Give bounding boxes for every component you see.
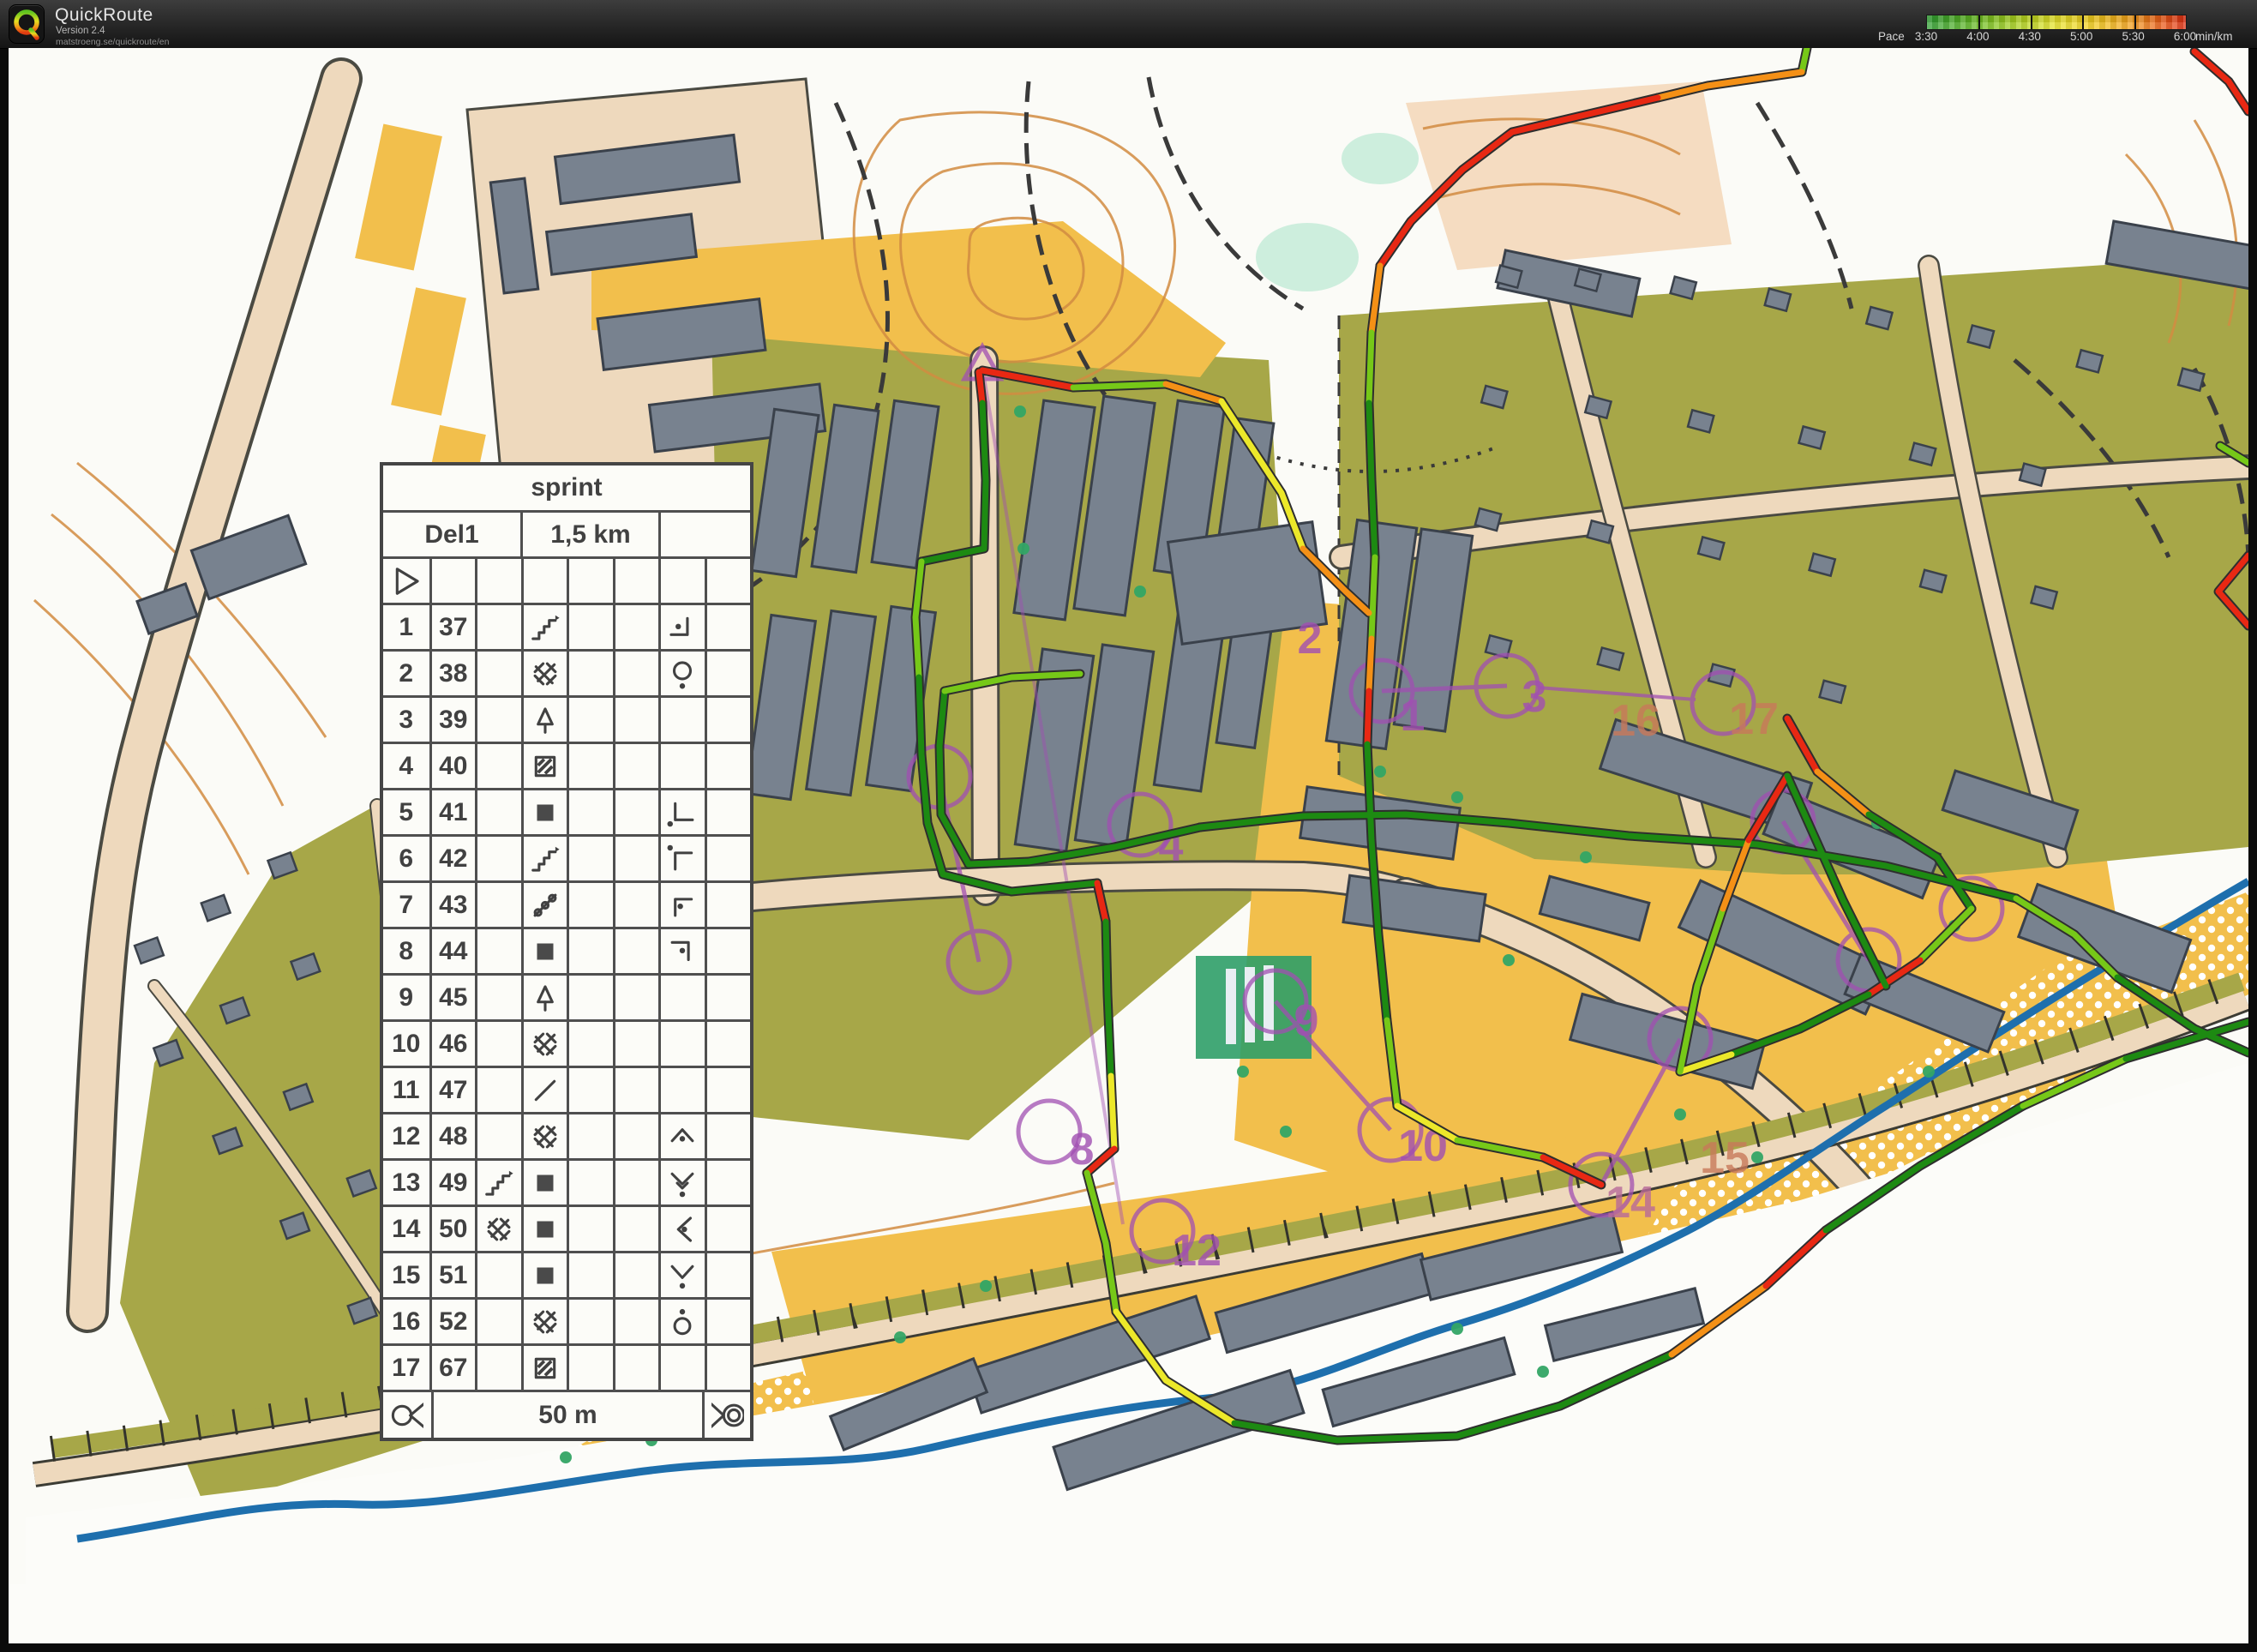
card-cell xyxy=(705,1251,751,1297)
empty-cell xyxy=(475,556,521,603)
card-cell xyxy=(475,649,521,695)
card-cell xyxy=(658,695,705,742)
card-cell xyxy=(705,788,751,834)
paved-area-icon xyxy=(529,1352,561,1385)
card-cell xyxy=(521,788,567,834)
card-cell xyxy=(658,1204,705,1251)
card-cell: 39 xyxy=(429,695,476,742)
pace-tick-label: 5:30 xyxy=(2122,30,2144,43)
control-row: 1767 xyxy=(383,1343,750,1390)
empty-cell xyxy=(521,556,567,603)
building-icon xyxy=(529,796,561,829)
pace-legend: Pace 3:304:004:305:005:306:00 min/km xyxy=(1876,3,2245,46)
control-code: 45 xyxy=(439,983,467,1012)
empty-cell xyxy=(429,556,476,603)
card-cell xyxy=(658,1297,705,1343)
card-cell xyxy=(613,1158,659,1204)
card-cell: 51 xyxy=(429,1251,476,1297)
control-number: 14 xyxy=(392,1215,420,1244)
card-cell: 3 xyxy=(383,695,429,742)
card-cell xyxy=(613,649,659,695)
control-number-on-map: 1 xyxy=(1401,691,1426,741)
control-code: 40 xyxy=(439,752,467,781)
control-row: 642 xyxy=(383,834,750,880)
course-title: sprint xyxy=(531,473,602,502)
control-number-on-map: 12 xyxy=(1172,1226,1222,1276)
card-cell xyxy=(567,788,613,834)
card-cell xyxy=(613,1066,659,1112)
card-cell xyxy=(475,880,521,927)
card-cell: 12 xyxy=(383,1112,429,1158)
card-cell xyxy=(521,973,567,1019)
thicket-icon xyxy=(529,658,561,690)
card-cell xyxy=(705,1158,751,1204)
control-number: 9 xyxy=(399,983,413,1012)
pace-tick-label: 4:00 xyxy=(1966,30,1989,43)
card-cell: 41 xyxy=(429,788,476,834)
course-length: 1,5 km xyxy=(550,520,630,550)
card-start-row xyxy=(383,556,750,603)
card-cell xyxy=(567,880,613,927)
card-cell xyxy=(658,973,705,1019)
card-cell: 5 xyxy=(383,788,429,834)
card-cell xyxy=(705,834,751,880)
card-cell xyxy=(567,1297,613,1343)
card-cell xyxy=(613,788,659,834)
control-code: 38 xyxy=(439,659,467,688)
circle-dot-below-icon xyxy=(666,658,699,690)
pace-tick xyxy=(2082,15,2084,29)
card-cell: 11 xyxy=(383,1066,429,1112)
finish-left-icon xyxy=(391,1399,423,1432)
card-cell: 48 xyxy=(429,1112,476,1158)
card-cell: 40 xyxy=(429,742,476,788)
title-bar: QuickRoute Version 2.4 matstroeng.se/qui… xyxy=(0,0,2257,49)
pace-tick xyxy=(2031,15,2032,29)
card-cell: 42 xyxy=(429,834,476,880)
stairs-icon xyxy=(529,611,561,644)
card-cell xyxy=(521,1204,567,1251)
control-number-on-map: 16 xyxy=(1611,696,1660,746)
card-cell xyxy=(658,649,705,695)
app-url: matstroeng.se/quickroute/en xyxy=(56,37,170,47)
card-cell xyxy=(567,1343,613,1390)
card-cell: 16 xyxy=(383,1297,429,1343)
empty-cell xyxy=(705,556,751,603)
control-number: 12 xyxy=(392,1122,420,1151)
corner-nw2-dot-icon xyxy=(666,843,699,875)
card-cell xyxy=(521,649,567,695)
card-cell xyxy=(705,603,751,649)
control-code: 42 xyxy=(439,844,467,874)
card-cell xyxy=(475,1251,521,1297)
card-cell: 67 xyxy=(429,1343,476,1390)
control-code: 41 xyxy=(439,798,467,827)
control-number-on-map: 14 xyxy=(1606,1178,1655,1228)
card-cell xyxy=(705,742,751,788)
card-cell xyxy=(613,973,659,1019)
card-cell xyxy=(613,695,659,742)
control-number-on-map: 17 xyxy=(1729,694,1779,744)
building-icon xyxy=(529,935,561,968)
control-number: 11 xyxy=(393,1076,420,1105)
card-course-cell: Del1 xyxy=(383,510,520,556)
card-cell: 4 xyxy=(383,742,429,788)
card-cell xyxy=(521,1112,567,1158)
thicket-icon xyxy=(529,1028,561,1060)
empty-cell xyxy=(567,556,613,603)
finish-symbol-cell xyxy=(702,1390,750,1438)
pace-tick-label: 4:30 xyxy=(2019,30,2041,43)
card-cell xyxy=(705,927,751,973)
card-cell xyxy=(567,927,613,973)
card-cell xyxy=(705,1019,751,1066)
card-cell: 43 xyxy=(429,880,476,927)
control-row: 1046 xyxy=(383,1019,750,1066)
card-empty-cell xyxy=(658,510,750,556)
card-title-cell: sprint xyxy=(383,466,750,510)
pace-tick-label: 6:00 xyxy=(2174,30,2196,43)
control-code: 67 xyxy=(439,1354,467,1383)
card-cell xyxy=(613,1251,659,1297)
pace-tick xyxy=(1978,15,1980,29)
card-finish-row: 50 m xyxy=(383,1390,750,1438)
card-cell: 15 xyxy=(383,1251,429,1297)
card-cell xyxy=(705,1343,751,1390)
empty-cell xyxy=(613,556,659,603)
card-cell xyxy=(475,1019,521,1066)
card-cell xyxy=(705,1112,751,1158)
card-cell: 17 xyxy=(383,1343,429,1390)
card-cell: 49 xyxy=(429,1158,476,1204)
slope-icon xyxy=(529,1074,561,1107)
control-row: 1652 xyxy=(383,1297,750,1343)
card-cell xyxy=(567,973,613,1019)
building-icon xyxy=(529,1213,561,1246)
card-cell: 1 xyxy=(383,603,429,649)
card-cell xyxy=(613,1019,659,1066)
control-number: 7 xyxy=(399,891,413,920)
control-number: 13 xyxy=(392,1168,420,1198)
control-row: 945 xyxy=(383,973,750,1019)
control-code: 52 xyxy=(439,1307,467,1337)
control-code: 47 xyxy=(439,1076,467,1105)
control-number-on-map: 3 xyxy=(1522,672,1547,722)
quickroute-logo-icon xyxy=(9,4,45,44)
card-cell xyxy=(613,1204,659,1251)
card-cell xyxy=(658,1343,705,1390)
card-cell xyxy=(705,1297,751,1343)
control-number: 2 xyxy=(399,659,413,688)
card-cell xyxy=(567,1251,613,1297)
stairs-icon xyxy=(483,1167,515,1199)
card-cell xyxy=(658,1251,705,1297)
card-cell xyxy=(475,1158,521,1204)
tree-icon xyxy=(529,982,561,1014)
card-cell xyxy=(567,1158,613,1204)
card-cell xyxy=(658,927,705,973)
card-cell xyxy=(613,880,659,927)
control-number: 1 xyxy=(399,613,413,642)
chevron-down-dot-icon xyxy=(666,1259,699,1292)
pace-tick-label: 3:30 xyxy=(1915,30,1937,43)
card-cell xyxy=(705,880,751,927)
card-cell: 52 xyxy=(429,1297,476,1343)
finish-distance-cell: 50 m xyxy=(431,1390,702,1438)
card-cell: 45 xyxy=(429,973,476,1019)
control-number-on-map: 9 xyxy=(1294,996,1319,1046)
control-code: 37 xyxy=(439,613,467,642)
card-cell xyxy=(475,834,521,880)
card-cell: 13 xyxy=(383,1158,429,1204)
pace-tick xyxy=(2134,15,2136,29)
card-length-cell: 1,5 km xyxy=(520,510,658,556)
control-number: 17 xyxy=(392,1354,420,1383)
control-row: 339 xyxy=(383,695,750,742)
control-row: 1248 xyxy=(383,1112,750,1158)
card-cell: 2 xyxy=(383,649,429,695)
card-cell xyxy=(567,1019,613,1066)
corner-sw-dot-icon xyxy=(666,796,699,829)
card-cell xyxy=(475,1297,521,1343)
card-cell xyxy=(613,742,659,788)
thicket-icon xyxy=(529,1306,561,1338)
course-label: Del1 xyxy=(424,520,478,550)
card-cell: 47 xyxy=(429,1066,476,1112)
pace-label: Pace xyxy=(1878,30,1905,43)
card-cell xyxy=(567,1204,613,1251)
control-row: 743 xyxy=(383,880,750,927)
control-number: 10 xyxy=(392,1030,420,1059)
tree-icon xyxy=(529,704,561,736)
empty-cell xyxy=(658,556,705,603)
card-cell xyxy=(613,834,659,880)
card-cell xyxy=(658,1158,705,1204)
card-cell xyxy=(521,742,567,788)
card-cell xyxy=(521,1343,567,1390)
card-cell xyxy=(475,788,521,834)
card-cell xyxy=(475,973,521,1019)
control-row: 1147 xyxy=(383,1066,750,1112)
card-cell: 10 xyxy=(383,1019,429,1066)
finish-right-icon xyxy=(711,1399,744,1432)
card-cell: 50 xyxy=(429,1204,476,1251)
control-row: 1349 xyxy=(383,1158,750,1204)
pace-tick-label: 5:00 xyxy=(2070,30,2092,43)
card-cell xyxy=(705,973,751,1019)
control-code: 39 xyxy=(439,706,467,735)
thicket-icon xyxy=(483,1213,515,1246)
card-cell xyxy=(521,1066,567,1112)
control-description-card: sprint Del1 1,5 km 137238339440541642743… xyxy=(380,462,753,1441)
card-cell: 8 xyxy=(383,927,429,973)
card-cell: 46 xyxy=(429,1019,476,1066)
card-cell xyxy=(567,695,613,742)
corner-nw-dot-icon xyxy=(666,611,699,644)
corner-ne-dot-icon xyxy=(666,935,699,968)
card-cell xyxy=(658,834,705,880)
card-cell xyxy=(567,603,613,649)
paved-area-icon xyxy=(529,750,561,783)
card-cell xyxy=(521,834,567,880)
pace-gradient-bar xyxy=(1926,15,2187,30)
card-cell xyxy=(521,1019,567,1066)
card-cell xyxy=(475,603,521,649)
building-icon xyxy=(529,1259,561,1292)
card-cell xyxy=(521,695,567,742)
control-number-on-map: 2 xyxy=(1298,614,1323,664)
control-row: 541 xyxy=(383,788,750,834)
card-cell xyxy=(613,1112,659,1158)
control-number: 4 xyxy=(399,752,413,781)
card-cell xyxy=(658,880,705,927)
finish-distance: 50 m xyxy=(538,1401,597,1430)
corner-nw3-dot-icon xyxy=(666,889,699,922)
app-title: QuickRoute xyxy=(55,5,153,26)
card-cell xyxy=(613,1343,659,1390)
control-number: 8 xyxy=(399,937,413,966)
card-cell xyxy=(521,603,567,649)
control-number: 5 xyxy=(399,798,413,827)
card-cell xyxy=(521,927,567,973)
control-row: 844 xyxy=(383,927,750,973)
control-number: 3 xyxy=(399,706,413,735)
card-cell xyxy=(521,880,567,927)
quickroute-window: QuickRoute Version 2.4 matstroeng.se/qui… xyxy=(0,0,2257,1652)
card-cell xyxy=(475,1343,521,1390)
start-icon xyxy=(390,565,423,598)
card-cell xyxy=(475,1204,521,1251)
chevron-up-dot-icon xyxy=(666,1120,699,1153)
building-icon xyxy=(529,1167,561,1199)
card-cell xyxy=(613,927,659,973)
control-row: 137 xyxy=(383,603,750,649)
card-cell xyxy=(705,1204,751,1251)
card-cell xyxy=(613,603,659,649)
control-row: 238 xyxy=(383,649,750,695)
control-row: 1551 xyxy=(383,1251,750,1297)
card-cell xyxy=(567,834,613,880)
wall-icon xyxy=(529,889,561,922)
card-cell xyxy=(658,742,705,788)
card-cell xyxy=(475,695,521,742)
finish-route-start-cell xyxy=(383,1390,431,1438)
control-code: 44 xyxy=(439,937,467,966)
control-code: 43 xyxy=(439,891,467,920)
start-cell xyxy=(383,556,429,603)
control-row: 1450 xyxy=(383,1204,750,1251)
card-cell xyxy=(567,649,613,695)
control-number: 15 xyxy=(392,1261,420,1290)
card-cell xyxy=(475,1066,521,1112)
card-cell: 9 xyxy=(383,973,429,1019)
card-cell xyxy=(658,788,705,834)
control-code: 50 xyxy=(439,1215,467,1244)
card-cell xyxy=(475,742,521,788)
card-cell xyxy=(567,742,613,788)
control-code: 48 xyxy=(439,1122,467,1151)
pace-unit-label: min/km xyxy=(2195,30,2233,43)
control-code: 49 xyxy=(439,1168,467,1198)
card-cell xyxy=(705,649,751,695)
card-cell xyxy=(521,1251,567,1297)
stairs-icon xyxy=(529,843,561,875)
card-cell xyxy=(658,1066,705,1112)
between-down-dot-icon xyxy=(666,1167,699,1199)
card-cell xyxy=(658,1019,705,1066)
chevron-left-dot-icon xyxy=(666,1213,699,1246)
card-cell xyxy=(475,1112,521,1158)
card-cell xyxy=(705,1066,751,1112)
control-number: 16 xyxy=(392,1307,420,1337)
card-cell xyxy=(567,1112,613,1158)
card-cell xyxy=(613,1297,659,1343)
control-code: 51 xyxy=(439,1261,467,1290)
orienteering-map: 123489101214151617 xyxy=(9,48,2248,1643)
control-code: 46 xyxy=(439,1030,467,1059)
card-cell: 7 xyxy=(383,880,429,927)
card-cell: 38 xyxy=(429,649,476,695)
card-cell xyxy=(658,1112,705,1158)
app-version: Version 2.4 xyxy=(56,26,105,36)
control-number: 6 xyxy=(399,844,413,874)
card-cell: 37 xyxy=(429,603,476,649)
control-row: 440 xyxy=(383,742,750,788)
card-cell: 14 xyxy=(383,1204,429,1251)
card-cell xyxy=(705,695,751,742)
card-cell: 44 xyxy=(429,927,476,973)
map-viewport[interactable]: 123489101214151617 xyxy=(9,48,2248,1643)
card-cell xyxy=(521,1297,567,1343)
circle-dot-above-icon xyxy=(666,1306,699,1338)
card-cell xyxy=(475,927,521,973)
thicket-icon xyxy=(529,1120,561,1153)
card-cell xyxy=(567,1066,613,1112)
control-number-on-map: 15 xyxy=(1700,1133,1750,1183)
card-cell xyxy=(658,603,705,649)
card-cell xyxy=(521,1158,567,1204)
card-cell: 6 xyxy=(383,834,429,880)
